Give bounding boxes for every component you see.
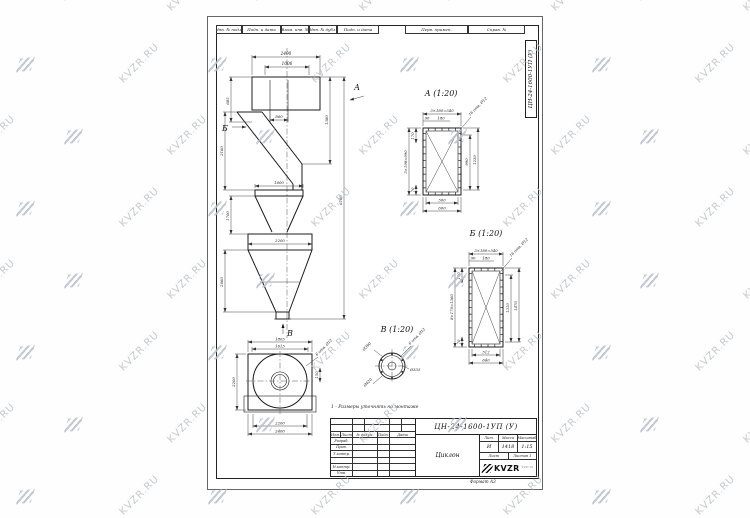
dim-a-600: 600	[438, 206, 446, 211]
dim-a-left: 5×198=990	[403, 150, 408, 174]
sheets-value: 1	[529, 454, 531, 458]
dim-b-1470: 1470	[513, 301, 518, 311]
title-block-right: ЦН-24-1600-1УП (У) Циклон Лит. Масса Мас…	[416, 419, 536, 476]
dim-a-540: 3×180=540	[430, 108, 454, 113]
front-view: 2400 1006 860 1600 2200 685 2160 1700 20…	[219, 48, 364, 338]
hdr-mass: Масса	[499, 435, 518, 441]
col-podp: Подп.	[378, 432, 390, 437]
col-dokum: № докум.	[353, 432, 378, 437]
dim-a-500: 500	[438, 198, 446, 203]
col-izm: Изм.	[331, 432, 341, 437]
dim-1700: 1700	[225, 211, 230, 221]
dim-v-335: Ø335	[409, 367, 421, 372]
dim-2060: 2060	[219, 277, 224, 288]
section-v: В (1:20) 6 отв. Ø12 Ø390 Ø335 Ø420	[360, 325, 426, 388]
dim-685: 685	[225, 97, 230, 105]
val-lit: И	[480, 442, 499, 452]
dim-p-2200: 2200	[274, 421, 285, 426]
row-razrab: Разраб.	[331, 438, 353, 443]
holes-note-b: 16 отв. Ø12	[508, 236, 529, 257]
holes-note-a: 16 отв. Ø12	[467, 95, 488, 116]
row-utv: Утв.	[331, 471, 353, 476]
dim-2400: 2400	[280, 51, 292, 56]
dim-v-390: Ø390	[360, 340, 372, 352]
dim-1380: 1380	[324, 115, 329, 125]
col-list: Лист	[341, 432, 353, 437]
dim-2160: 2160	[219, 146, 224, 157]
dim-a-90: 90	[425, 116, 430, 121]
row-tkontr: Т.контр.	[331, 451, 353, 456]
dim-b-170: 170	[456, 272, 461, 280]
row-prov: Пров.	[331, 445, 353, 450]
row-nkontr: Н.контр.	[331, 464, 353, 469]
holes-note-p: 6 отв. Ø12	[314, 337, 334, 357]
dim-a-70: 70	[410, 187, 415, 192]
val-mass: 1418	[499, 442, 518, 452]
dim-6160: 6160	[338, 195, 343, 205]
dim-2200: 2200	[274, 238, 285, 243]
kvzr-logo-text: KVZR	[494, 464, 520, 473]
dim-b-540: 3×180=540	[474, 248, 498, 253]
dim-1600: 1600	[274, 180, 284, 185]
format-label: Формат А3	[470, 479, 496, 484]
logo-cell: KVZR kvzr.ru	[480, 460, 536, 476]
part-name: Циклон	[416, 435, 480, 476]
dim-a-1230: 1230	[472, 155, 477, 165]
section-a: А (1:20) 3×180=540 90 180 16 отв. Ø12 5×…	[403, 89, 488, 213]
dim-b-512: 512	[482, 350, 490, 355]
dim-1006: 1006	[282, 61, 293, 66]
sheets-label: Листов	[513, 454, 528, 458]
dim-b-1310: 1310	[505, 303, 510, 313]
hdr-lit: Лит.	[480, 435, 499, 441]
section-b-title: Б (1:20)	[469, 229, 503, 238]
hdr-sheet: Лист	[480, 453, 509, 459]
dim-860: 860	[275, 114, 283, 119]
dim-b-640: 640	[482, 358, 490, 363]
dim-a-170: 170	[410, 132, 415, 140]
dim-b-70: 70	[456, 339, 461, 344]
dim-b-90: 90	[471, 256, 476, 261]
section-b: Б (1:20) 3×180=540 90 180 16 отв. Ø12 8×…	[449, 229, 529, 365]
section-a-title: А (1:20)	[424, 89, 458, 98]
val-scale: 1:15	[518, 442, 536, 452]
doc-number: ЦН-24-1600-1УП (У)	[416, 419, 536, 435]
hdr-sheets: Листов 1	[509, 453, 537, 459]
dim-a-180: 180	[437, 116, 445, 121]
row-blank	[331, 458, 353, 463]
scanned-drawing-page: { "watermark": { "text": "KVZR.RU" }, "s…	[0, 0, 750, 500]
dim-p-1615: 1615	[275, 344, 285, 349]
view-label-v: В	[286, 329, 293, 338]
view-label-a: А	[353, 83, 360, 92]
section-v-title: В (1:20)	[380, 325, 414, 334]
col-data: Дата	[390, 432, 415, 437]
dim-p-2400: 2400	[274, 429, 285, 434]
hdr-scale: Масштаб	[518, 435, 536, 441]
dim-p-150: 150	[314, 371, 319, 379]
title-block: Изм. Лист № докум. Подп. Дата Разраб. Пр…	[330, 418, 537, 477]
dim-p-1805: 1805	[275, 337, 285, 342]
dim-b-180: 180	[482, 256, 490, 261]
plan-view: 1805 1615 2200 2200 2400 6 отв. Ø12 150	[231, 337, 334, 437]
title-block-left-grid: Изм. Лист № докум. Подп. Дата Разраб. Пр…	[331, 419, 416, 476]
kvzr-logo-icon	[482, 464, 494, 473]
dim-p-left-2200: 2200	[231, 377, 236, 388]
dim-v-420: Ø420	[361, 376, 373, 388]
dim-b-left: 8×170=1360	[449, 294, 454, 320]
view-label-b: Б	[221, 124, 228, 133]
dim-a-990: 990	[464, 158, 469, 166]
logo-note: kvzr.ru	[522, 466, 534, 470]
